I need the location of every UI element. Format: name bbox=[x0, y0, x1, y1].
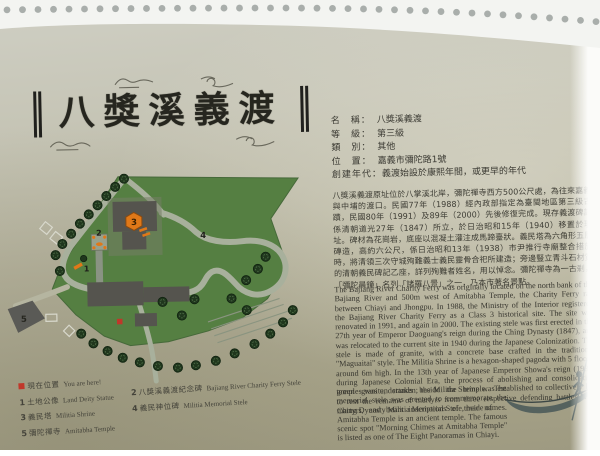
title-left-bracket-icon bbox=[33, 91, 51, 137]
cloud-motif-icon bbox=[48, 136, 92, 153]
description-english-part2: green granite, stands beside the temple.… bbox=[336, 384, 507, 443]
svg-text:2: 2 bbox=[96, 229, 102, 238]
you-are-here-map-marker bbox=[117, 319, 123, 325]
plaque-title-text: 八獎溪義渡 bbox=[58, 86, 284, 137]
site-map: 2 3 1 4 5 bbox=[3, 170, 325, 391]
svg-text:1: 1 bbox=[84, 264, 90, 273]
title-right-bracket-icon bbox=[291, 86, 309, 132]
cloud-motif-icon bbox=[113, 73, 155, 90]
plaque-title: 八獎溪義渡 bbox=[33, 86, 309, 138]
svg-text:3: 3 bbox=[131, 218, 137, 228]
sign-photo: 八獎溪義渡 bbox=[0, 0, 600, 450]
description-chinese: 八獎溪義渡原址位於八掌溪北岸，彌陀禪寺西方500公尺處，為往來嘉義與中埔的渡口。… bbox=[332, 185, 593, 291]
perforated-top-strip bbox=[0, 0, 600, 50]
cloud-motif-icon bbox=[234, 132, 278, 149]
site-info-list: 名 稱：八獎溪義渡 等 級：第三級 類 別：其他 位 置：嘉義市彌陀路1號 創建… bbox=[331, 110, 594, 183]
photo-white-edge bbox=[570, 0, 600, 450]
map-marker-4-label: 4 bbox=[200, 231, 206, 241]
plaque-content: 八獎溪義渡 bbox=[0, 0, 600, 456]
map-marker-5-label: 5 bbox=[21, 315, 27, 325]
you-are-here-marker bbox=[18, 383, 24, 389]
